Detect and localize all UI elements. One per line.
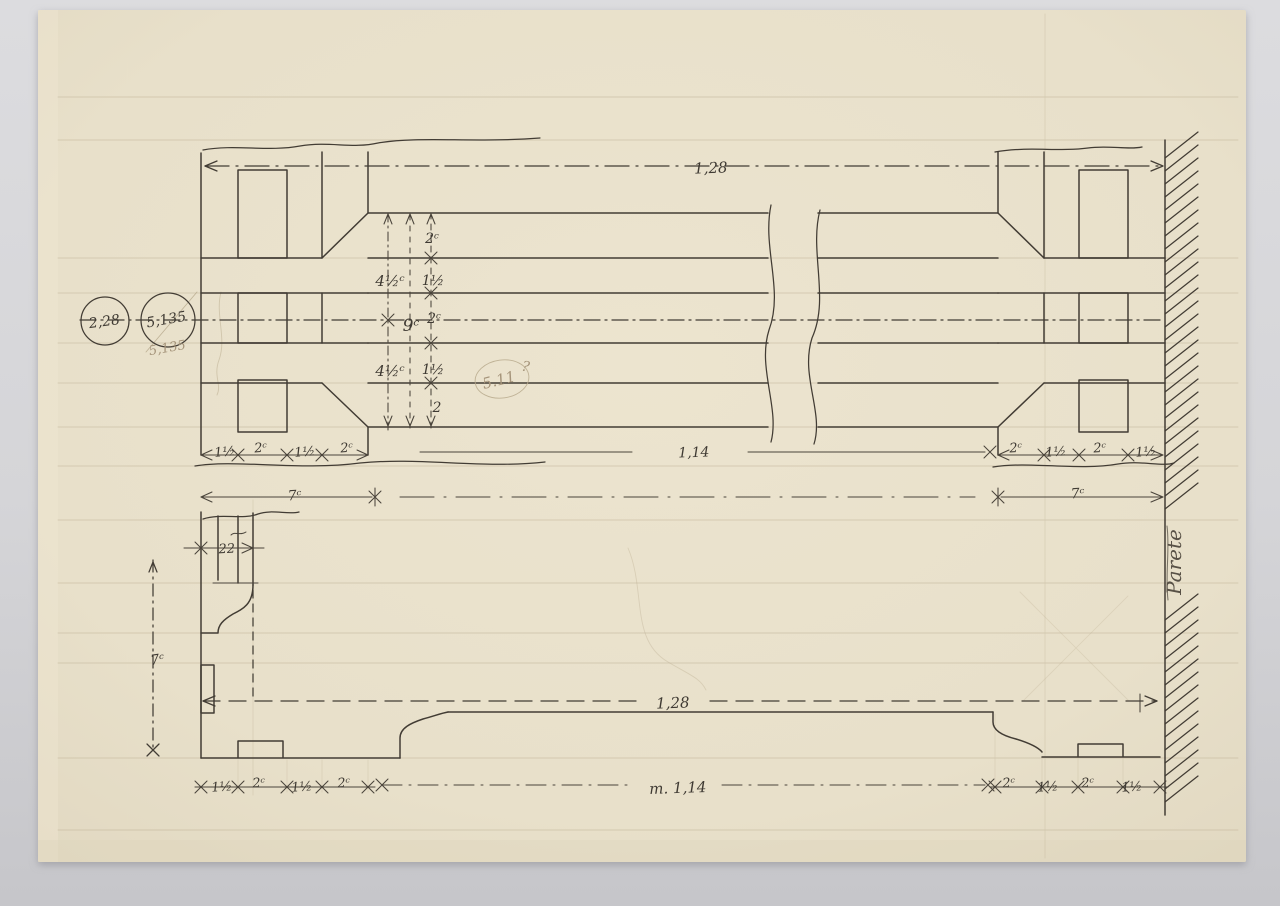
plan-left-dim-3: 1½ <box>294 444 316 461</box>
plan-right-dim-2: 1½ <box>1045 444 1067 460</box>
elev-right-dim-2: 1½ <box>1037 779 1059 795</box>
elev-right-dim-1: 2ᶜ <box>1001 776 1016 792</box>
stack-dim-4: 1½ <box>422 362 444 378</box>
plan-right-dim-3: 2ᶜ <box>1092 441 1107 457</box>
dim-label-overall-bottom: 1,28 <box>656 693 690 712</box>
dim-label-inner-top: 1,14 <box>678 444 710 461</box>
plan-right-dim-4: 1½ <box>1135 444 1157 460</box>
seven-dim-vertical: 7ᶜ <box>149 651 165 669</box>
elev-left-dim-2: 2ᶜ <box>251 776 266 792</box>
elev-left-dim-4: 2ᶜ <box>336 776 351 792</box>
stack-dim-5: 2 <box>432 400 442 416</box>
seven-dim-right: 7ᶜ <box>1070 486 1085 503</box>
stack-dim-left-lower: 4½ᶜ <box>374 362 404 380</box>
stack-dim-left-upper: 4½ᶜ <box>374 272 404 290</box>
elev-right-dim-3: 2ᶜ <box>1080 776 1095 792</box>
dim-label-22: 22 <box>217 542 235 558</box>
stack-dim-2: 1½ <box>422 273 444 289</box>
wall-label: Parete <box>1162 529 1186 596</box>
elev-left-dim-3: 1½ <box>291 779 313 795</box>
plan-left-dim-2: 2ᶜ <box>253 440 269 456</box>
stack-dim-left-mid: 9ᶜ <box>403 316 420 336</box>
elev-right-dim-4: 1½ <box>1121 779 1143 795</box>
drawing-canvas: 1,28 2,28 5,135 5,135 2ᶜ 4½ᶜ 1½ 9ᶜ 2ᶜ 4½… <box>0 0 1280 906</box>
stack-dim-1: 2ᶜ <box>424 231 439 247</box>
seven-dim-left: 7ᶜ <box>287 488 302 505</box>
photograph-of-drawing: 1,28 2,28 5,135 5,135 2ᶜ 4½ᶜ 1½ 9ᶜ 2ᶜ 4½… <box>0 0 1280 906</box>
plan-left-dim-4: 2ᶜ <box>339 440 355 456</box>
paper-sheet <box>38 10 1246 862</box>
stack-dim-3: 2ᶜ <box>426 311 441 327</box>
dim-label-overall-top: 1,28 <box>694 158 728 177</box>
dim-label-total-bottom: m. 1,14 <box>649 778 707 798</box>
plan-right-dim-1: 2ᶜ <box>1008 441 1023 457</box>
plan-left-dim-1: 1½ <box>214 444 236 461</box>
elev-left-dim-1: 1½ <box>211 779 233 795</box>
